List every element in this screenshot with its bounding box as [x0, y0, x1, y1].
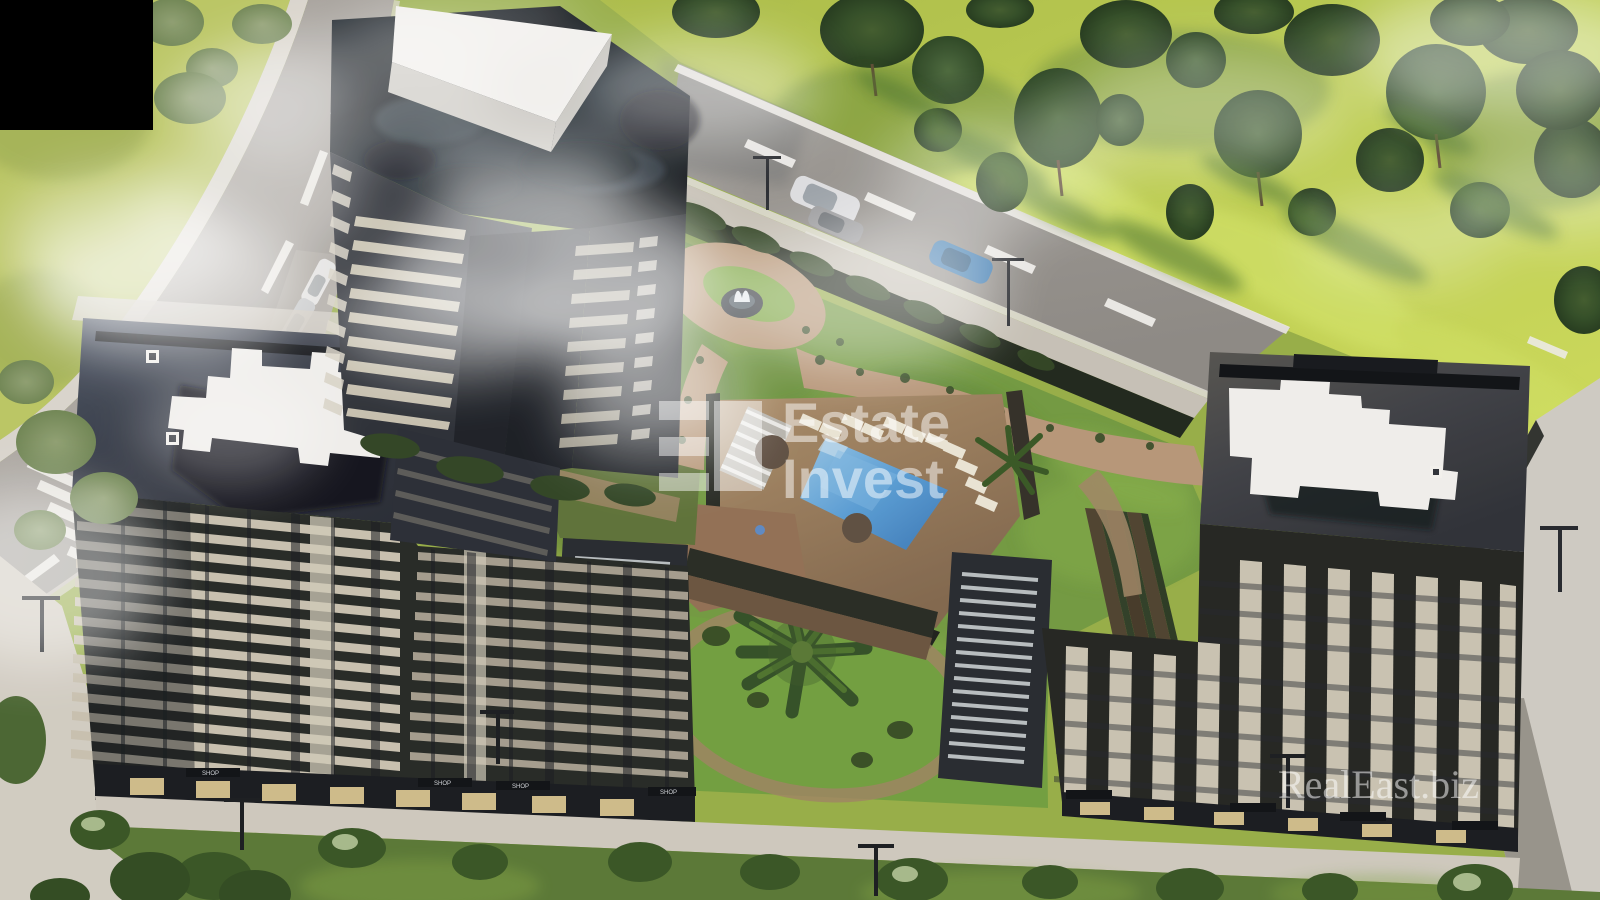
svg-text:Invest: Invest — [782, 447, 944, 510]
svg-text:RealEast.biz: RealEast.biz — [1278, 762, 1479, 807]
svg-text:Estate: Estate — [782, 391, 950, 454]
